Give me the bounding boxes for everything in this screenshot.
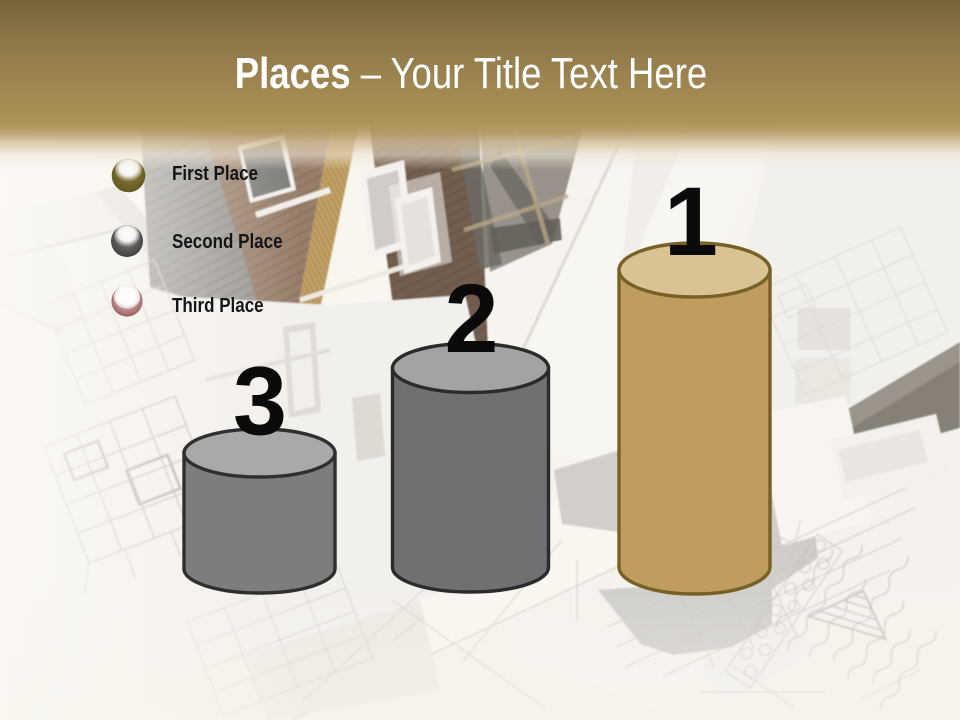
svg-text:2: 2 (445, 264, 499, 373)
svg-text:3: 3 (233, 347, 287, 456)
svg-text:1: 1 (664, 167, 718, 276)
